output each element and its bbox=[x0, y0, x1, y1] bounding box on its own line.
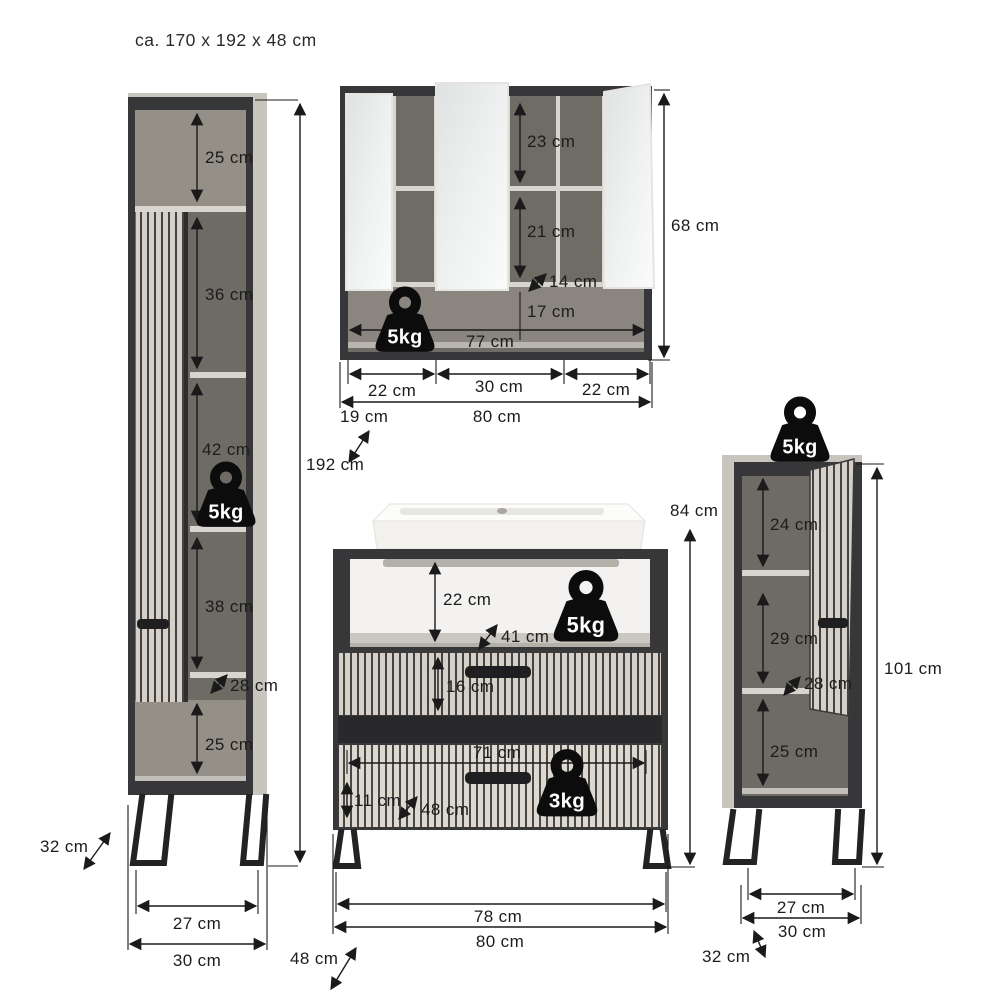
mirror-cabinet-shelf bbox=[510, 186, 602, 191]
dim-label: 30 cm bbox=[475, 377, 523, 396]
weight-label: 3kg bbox=[549, 790, 585, 813]
diagram-canvas: ca. 170 x 192 x 48 cm 25 cm 36 cm 42 cm bbox=[0, 0, 984, 1001]
side-cabinet-shelf bbox=[742, 570, 812, 576]
mirror-cabinet-shelf bbox=[396, 186, 436, 191]
dim-label: 80 cm bbox=[473, 407, 521, 426]
dim-label: 32 cm bbox=[40, 837, 88, 856]
drawer2-handle bbox=[465, 772, 531, 784]
dim-label: 25 cm bbox=[770, 742, 818, 761]
dim-side-leg-span: 27 cm bbox=[748, 868, 855, 917]
overall-dimensions-title: ca. 170 x 192 x 48 cm bbox=[135, 30, 317, 50]
dim-label: 71 cm bbox=[473, 743, 521, 762]
vanity-left-leg bbox=[336, 832, 358, 866]
washbasin-front bbox=[373, 521, 645, 549]
dim-label: 42 cm bbox=[202, 440, 250, 459]
vanity-drawer-1 bbox=[338, 652, 662, 716]
dim-label: 29 cm bbox=[770, 629, 818, 648]
dim-vanity-total-height: 84 cm bbox=[664, 501, 718, 867]
weight-label: 5kg bbox=[567, 612, 606, 637]
dim-label: 23 cm bbox=[527, 132, 575, 151]
tall-cabinet-shelf bbox=[190, 526, 246, 532]
dim-label: 48 cm bbox=[421, 800, 469, 819]
dim-label: 16 cm bbox=[446, 677, 494, 696]
faucet-hole bbox=[497, 508, 507, 514]
side-cabinet-shelf bbox=[742, 688, 812, 694]
weight-icon: 5kg bbox=[771, 401, 830, 461]
dim-label: 28 cm bbox=[804, 674, 852, 693]
dim-label: 27 cm bbox=[173, 914, 221, 933]
dim-label: 24 cm bbox=[770, 515, 818, 534]
dim-label: 192 cm bbox=[306, 455, 364, 474]
dim-label: 32 cm bbox=[702, 947, 750, 966]
dim-vanity-depth: 48 cm bbox=[290, 948, 356, 989]
dim-vanity-total-width: 80 cm bbox=[333, 834, 668, 951]
mirror-cabinet: 23 cm 21 cm 14 cm 17 cm 77 cm 22 cm 3 bbox=[340, 83, 719, 462]
mirror-door-center bbox=[436, 83, 508, 290]
dim-label: 17 cm bbox=[527, 302, 575, 321]
dim-mirror-height: 68 cm bbox=[648, 90, 719, 360]
dim-label: 84 cm bbox=[670, 501, 718, 520]
dim-label: 22 cm bbox=[443, 590, 491, 609]
tall-cabinet: 25 cm 36 cm 42 cm 38 cm 28 cm 25 cm 192 … bbox=[40, 93, 364, 970]
tall-cabinet-door-handle bbox=[137, 619, 169, 629]
dim-label: 19 cm bbox=[340, 407, 388, 426]
weight-label: 5kg bbox=[208, 501, 243, 523]
dim-label: 41 cm bbox=[501, 627, 549, 646]
dim-label: 48 cm bbox=[290, 949, 338, 968]
weight-label: 5kg bbox=[782, 436, 817, 458]
dim-mirror-sections: 22 cm 30 cm 22 cm bbox=[348, 360, 650, 400]
dim-label: 22 cm bbox=[368, 381, 416, 400]
dim-side-depth: 32 cm bbox=[702, 931, 765, 966]
dim-label: 30 cm bbox=[778, 922, 826, 941]
vanity-right-leg bbox=[646, 832, 668, 866]
dim-tall-leg-span: 27 cm bbox=[136, 870, 258, 933]
dim-side-total-height: 101 cm bbox=[856, 464, 942, 867]
dim-label: 36 cm bbox=[205, 285, 253, 304]
vanity: 84 cm 22 cm 41 cm 16 cm 71 cm 11 cm bbox=[290, 501, 718, 989]
side-cabinet-door-handle bbox=[818, 618, 848, 628]
dim-label: 11 cm bbox=[354, 791, 401, 810]
side-cabinet-left-leg bbox=[726, 812, 759, 862]
tall-cabinet-right-leg bbox=[243, 797, 266, 863]
dim-tall-depth: 32 cm bbox=[40, 833, 110, 869]
dim-label: 80 cm bbox=[476, 932, 524, 951]
dim-label: 38 cm bbox=[205, 597, 253, 616]
side-cabinet-right-leg bbox=[835, 812, 862, 862]
dim-label: 27 cm bbox=[777, 898, 825, 917]
mirror-door-left bbox=[346, 94, 392, 290]
tall-cabinet-left-leg bbox=[133, 797, 171, 863]
dim-label: 14 cm bbox=[549, 272, 597, 291]
dim-mirror-depth: 19 cm bbox=[340, 407, 388, 462]
tall-cabinet-shelf bbox=[135, 206, 246, 212]
dim-vanity-leg-span: 78 cm bbox=[336, 872, 666, 926]
dim-label: 30 cm bbox=[173, 951, 221, 970]
side-cabinet: 24 cm 29 cm 28 cm 25 cm 101 cm 27 cm bbox=[702, 401, 942, 966]
dim-label: 78 cm bbox=[474, 907, 522, 926]
dim-label: 22 cm bbox=[582, 380, 630, 399]
dim-label: 68 cm bbox=[671, 216, 719, 235]
mirror-door-right bbox=[604, 84, 654, 288]
dim-label: 21 cm bbox=[527, 222, 575, 241]
weight-label: 5kg bbox=[387, 326, 422, 348]
dim-label: 25 cm bbox=[205, 735, 253, 754]
dim-label: 101 cm bbox=[884, 659, 942, 678]
dim-label: 28 cm bbox=[230, 676, 278, 695]
dim-label: 25 cm bbox=[205, 148, 253, 167]
tall-cabinet-shelf bbox=[190, 372, 246, 378]
dim-label: 77 cm bbox=[466, 332, 514, 351]
